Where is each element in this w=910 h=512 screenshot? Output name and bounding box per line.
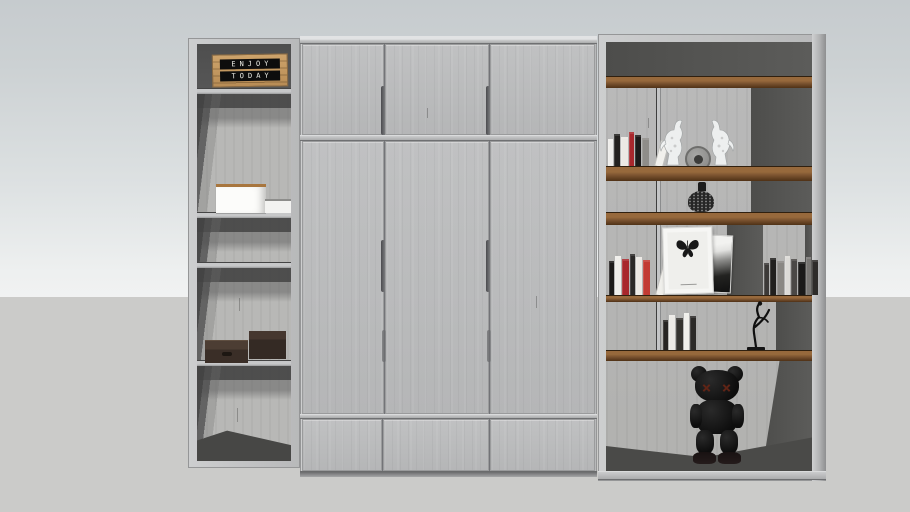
right-column-plinth xyxy=(598,471,826,480)
tall-door-2 xyxy=(385,141,489,414)
butterfly-icon xyxy=(674,237,701,260)
sign-line-2: TODAY xyxy=(220,70,280,81)
door-handle-groove xyxy=(486,240,490,292)
wood-grain-mark xyxy=(536,296,537,308)
top-door-2 xyxy=(385,44,489,135)
tall-door-1 xyxy=(302,141,384,414)
wood-grain-mark xyxy=(427,108,428,118)
door-handle-groove xyxy=(382,330,386,362)
right-side-shadow xyxy=(751,88,812,166)
letter-board-sign: ENJOY TODAY xyxy=(212,53,289,87)
wood-grain-mark xyxy=(237,408,238,422)
drawer-1 xyxy=(302,419,382,471)
door-handle-groove xyxy=(381,240,385,292)
books-gallery-left xyxy=(609,250,664,295)
horse-figurines xyxy=(655,118,739,166)
left-compartment-3 xyxy=(197,218,291,262)
books-gallery-right xyxy=(764,252,818,295)
speckled-vase xyxy=(688,182,715,212)
right-side-shadow xyxy=(776,302,812,350)
wood-shelf-3 xyxy=(606,212,812,225)
wood-shelf-2 xyxy=(606,166,812,181)
book-stack xyxy=(663,310,696,350)
storage-box-right xyxy=(249,331,286,359)
right-side-shadow xyxy=(751,181,812,212)
drawer-gap xyxy=(382,419,383,471)
wood-shelf-5 xyxy=(606,350,812,361)
drawer-3 xyxy=(490,419,595,471)
door-handle-groove xyxy=(381,86,385,135)
wood-shelf-4 xyxy=(606,295,812,302)
door-handle-groove xyxy=(486,86,490,135)
storage-box-left xyxy=(205,340,248,363)
top-door-3 xyxy=(490,44,595,135)
black-companion-figure xyxy=(688,364,746,464)
right-top-compartment xyxy=(606,42,812,76)
dancer-sculpture xyxy=(738,299,774,352)
sign-line-1: ENJOY xyxy=(220,58,280,69)
viewport-3d[interactable]: ENJOY TODAY xyxy=(0,0,910,512)
drawer-gap xyxy=(489,419,490,471)
wardrobe-plinth xyxy=(300,471,597,477)
butterfly-frame xyxy=(662,226,714,294)
white-box xyxy=(216,184,266,213)
wood-grain-mark xyxy=(239,298,240,311)
white-booklet xyxy=(265,199,291,213)
right-divider xyxy=(656,181,661,212)
wood-grain-mark xyxy=(648,118,649,128)
tall-door-3 xyxy=(490,141,595,414)
drawer-2 xyxy=(383,419,489,471)
door-handle-groove xyxy=(487,330,491,362)
wood-shelf-1 xyxy=(606,76,812,88)
top-door-1 xyxy=(302,44,384,135)
right-divider xyxy=(656,302,661,350)
